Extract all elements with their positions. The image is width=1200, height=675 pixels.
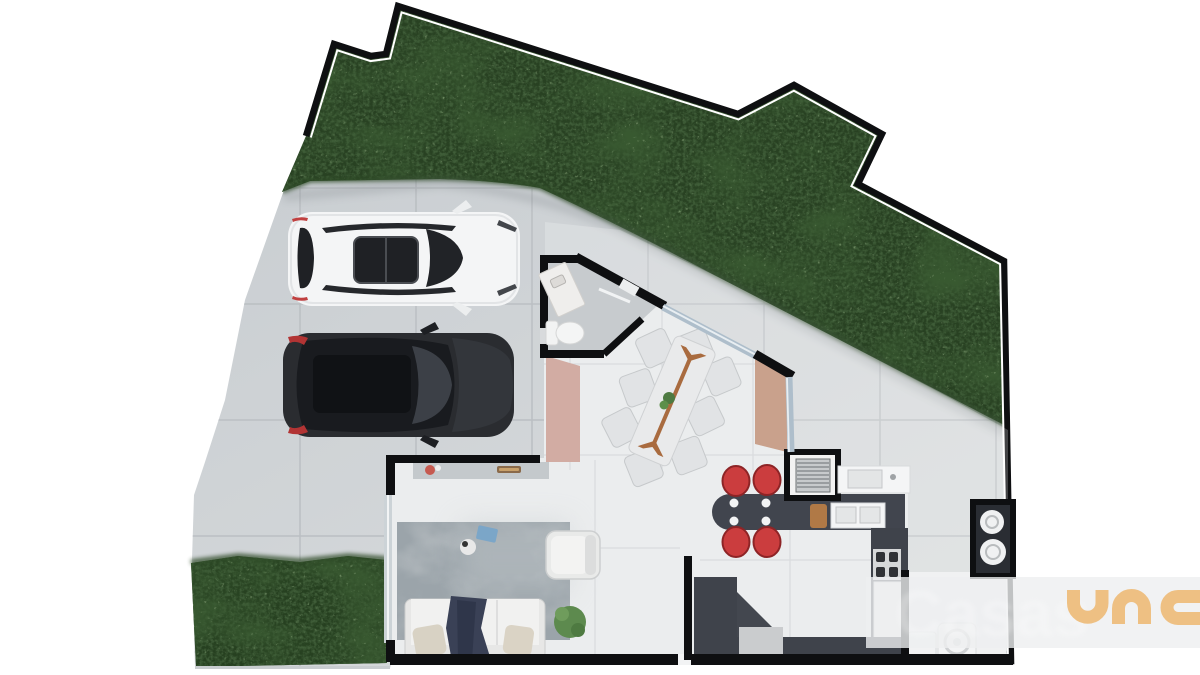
svg-text:Casas: Casas xyxy=(895,576,1090,650)
